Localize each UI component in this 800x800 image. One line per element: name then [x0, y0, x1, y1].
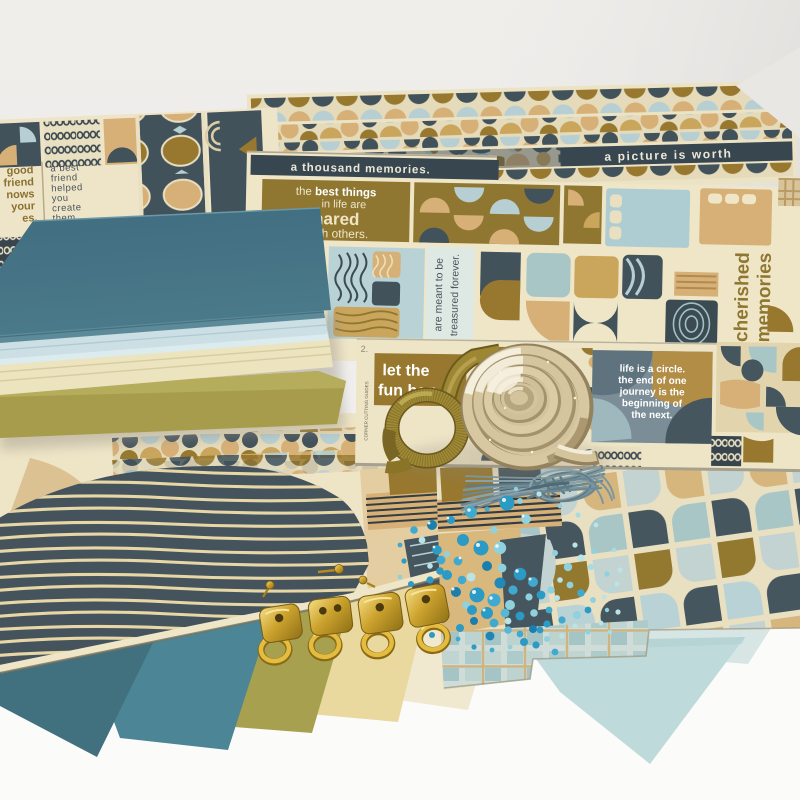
svg-text:are meant to be: are meant to be [432, 258, 446, 332]
svg-text:beginning of: beginning of [622, 398, 683, 410]
svg-text:life is a circle.: life is a circle. [620, 364, 686, 376]
svg-text:treasured forever.: treasured forever. [448, 254, 462, 337]
svg-text:CORNER CUTTING GUIDES: CORNER CUTTING GUIDES [363, 381, 369, 440]
svg-text:the end of one: the end of one [618, 375, 687, 387]
svg-text:your: your [11, 200, 36, 213]
svg-text:let the: let the [382, 362, 429, 380]
svg-text:cherished: cherished [731, 252, 754, 342]
svg-text:the best things: the best things [296, 186, 377, 200]
svg-text:2.: 2. [361, 344, 369, 354]
svg-text:journey is the: journey is the [619, 387, 686, 399]
svg-text:the next.: the next. [631, 410, 672, 422]
svg-text:th others.: th others. [318, 226, 368, 241]
